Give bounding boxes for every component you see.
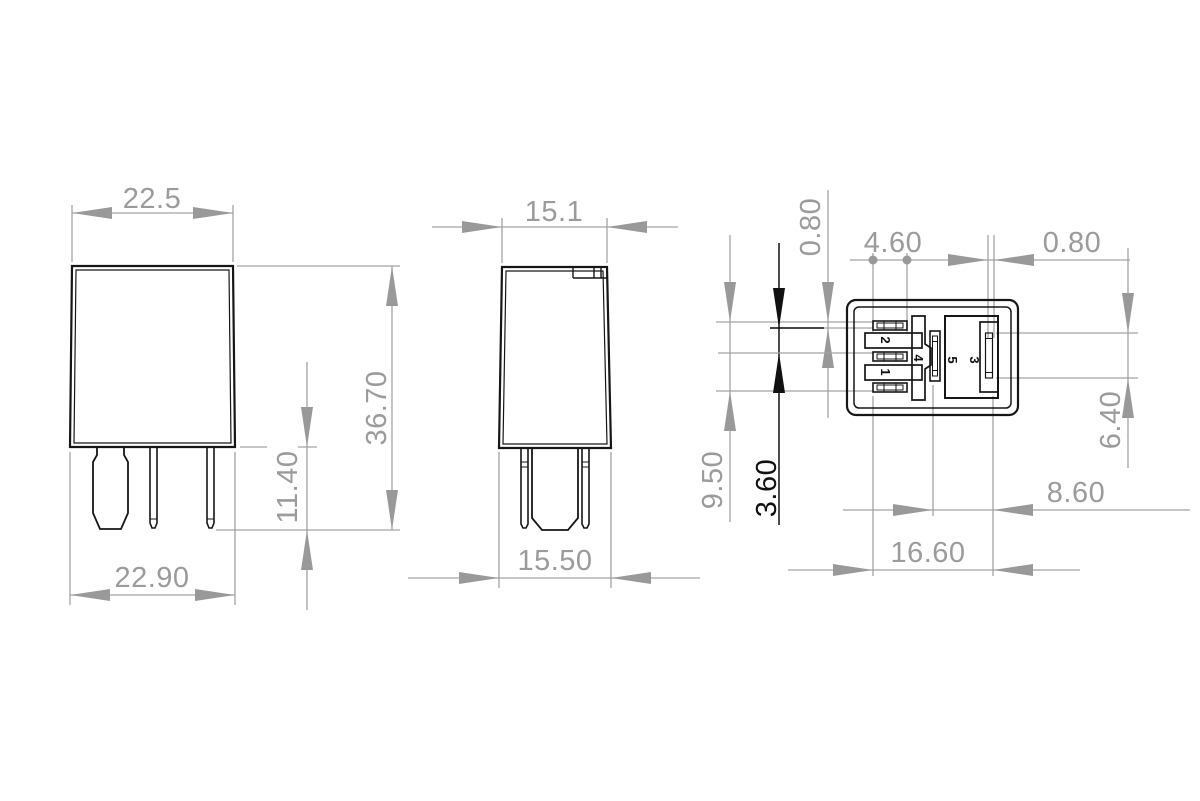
pin-label-5: 5 (945, 356, 960, 363)
dim-label-side-top-width: 15.1 (525, 196, 583, 228)
arrowhead-up (301, 530, 313, 570)
dim-label-front-overall-height: 36.70 (361, 370, 393, 445)
arrowhead-left (993, 564, 1033, 576)
dim-label-pin3-thickness: 0.80 (1043, 227, 1101, 259)
arrowhead-down (1122, 293, 1134, 333)
arrowhead-up (773, 353, 785, 393)
dim-bottom-pin-span-height (716, 235, 874, 522)
front-pin-thin-left (150, 447, 157, 528)
blade (877, 323, 903, 328)
arrowhead-left (611, 572, 651, 584)
arrowhead-up (724, 391, 736, 431)
dim-label-pin-span-width: 16.60 (890, 537, 965, 569)
arrowhead-right (195, 589, 235, 601)
arrowhead-up (386, 266, 398, 306)
arrowhead-right (459, 572, 499, 584)
dim-label-front-top-width: 22.5 (123, 183, 181, 215)
dim-label-coil-pitch: 3.60 (751, 459, 783, 517)
dim-label-pin3-offset: 8.60 (1047, 477, 1105, 509)
dim-label-front-pin-length: 11.40 (272, 451, 304, 524)
front-body-outline (70, 266, 235, 447)
slot-middle (873, 352, 907, 361)
drawing-canvas: 22.5 22.90 36.70 11.40 15.1 15.50 9.50 3… (0, 0, 1200, 801)
pin-outline (582, 448, 589, 528)
blade (877, 385, 903, 390)
arrowhead-left (607, 221, 647, 233)
dim-label-pin3-length: 6.40 (1095, 391, 1127, 449)
arrowhead-down (724, 282, 736, 322)
side-body-inner-line (503, 271, 607, 444)
slot-top (873, 321, 907, 330)
front-body-inner-line (74, 270, 231, 443)
pin-label-3: 3 (967, 356, 982, 363)
blade (877, 354, 903, 359)
dim-label-front-bottom-width: 22.90 (114, 562, 189, 594)
pin-outline (207, 447, 214, 528)
front-pin-thin-right (207, 447, 214, 528)
side-view (499, 267, 611, 530)
arrowhead-down (301, 407, 313, 447)
arrowhead-right (193, 207, 233, 219)
slot-outline (873, 321, 907, 330)
blade (986, 333, 993, 378)
dim-bottom-coil-pitch (718, 243, 874, 525)
side-pin-wide-blade (532, 448, 578, 530)
pin-label-2: 2 (878, 336, 893, 343)
arrowhead-left (994, 254, 1034, 266)
side-body-outline (499, 267, 611, 448)
front-pin-wide-blade (93, 447, 128, 529)
pin-outline (521, 448, 528, 528)
dimension-labels: 22.5 22.90 36.70 11.40 15.1 15.50 9.50 3… (114, 183, 1127, 594)
pin-outline (150, 447, 157, 528)
slot-outline (873, 352, 907, 361)
dim-label-coil-slot-length: 4.60 (864, 227, 922, 259)
arrowhead-up (822, 328, 834, 368)
side-pin-thin-left (521, 448, 528, 528)
relay-technical-drawing: 22.5 22.90 36.70 11.40 15.1 15.50 9.50 3… (0, 0, 1200, 801)
slot-outline (873, 383, 907, 392)
dim-label-pin-span-height: 9.50 (697, 451, 729, 509)
arrowhead-left (993, 504, 1033, 516)
dim-label-blade-thickness-left: 0.80 (795, 198, 827, 256)
arrowhead-right (893, 504, 933, 516)
slot-bottom (873, 383, 907, 392)
side-pin-thin-right (582, 448, 589, 528)
pin-label-1: 1 (878, 368, 893, 375)
arrowhead-right (948, 254, 988, 266)
arrowhead-down (386, 490, 398, 530)
dimension-layer (70, 190, 1190, 610)
side-top-notch (573, 267, 607, 278)
pin-label-4: 4 (911, 354, 926, 362)
dim-label-side-bottom-width: 15.50 (517, 545, 592, 577)
arrowhead-right (833, 564, 873, 576)
dim-bottom-coil-slot-length (850, 253, 1130, 332)
arrowhead-down (822, 282, 834, 322)
arrowhead-left (72, 207, 112, 219)
front-view (70, 266, 235, 529)
arrowhead-left (70, 589, 110, 601)
arrowhead-right (462, 221, 502, 233)
